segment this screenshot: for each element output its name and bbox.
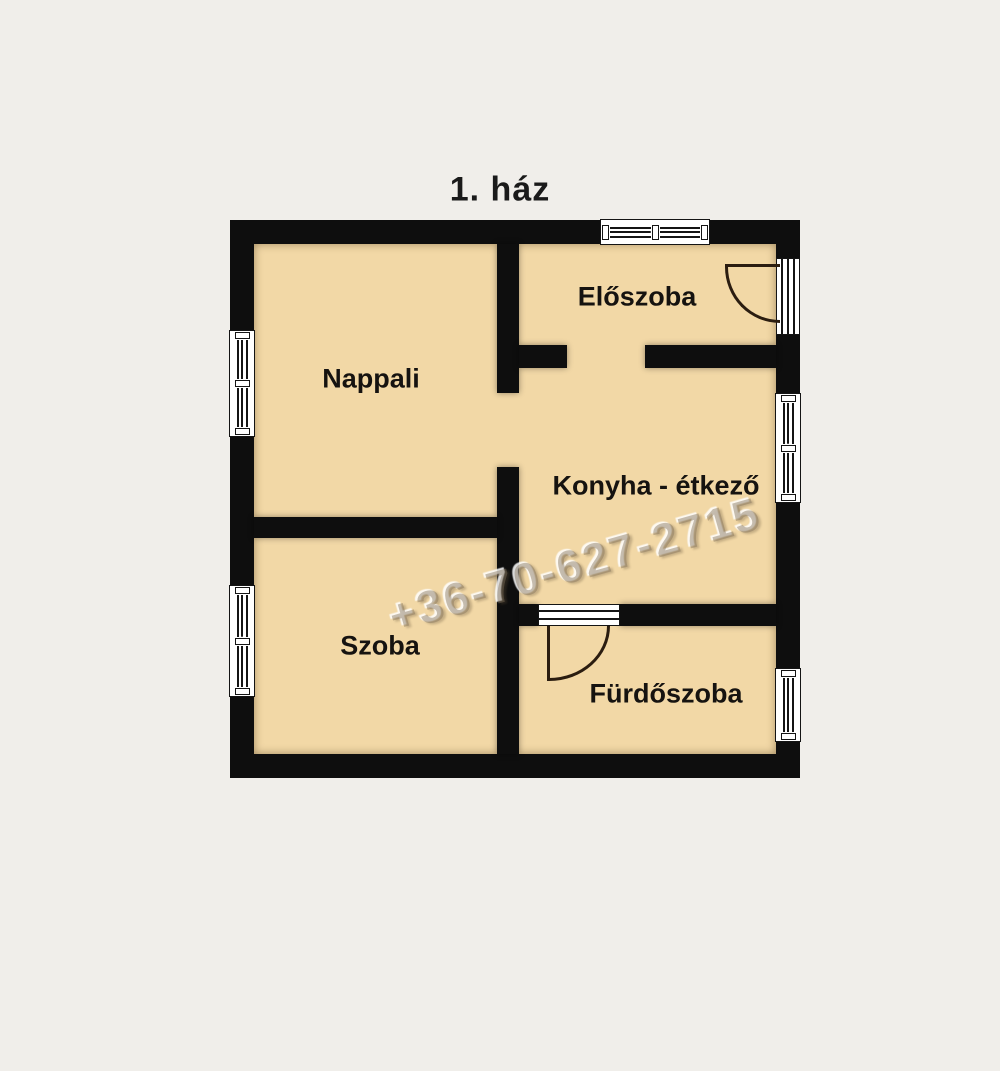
window-post	[652, 225, 659, 240]
bathroom-door-frame-icon	[538, 604, 620, 626]
window-glass	[237, 388, 248, 427]
window-glass	[610, 227, 651, 238]
room-label-nappali: Nappali	[322, 364, 420, 395]
window-post	[235, 638, 250, 645]
interior-wall-nappali-szoba	[254, 517, 497, 538]
exterior-wall-bottom	[230, 754, 800, 778]
window-icon-nappali-left	[229, 330, 255, 437]
window-post	[781, 670, 796, 677]
window-post	[235, 380, 250, 387]
window-post	[781, 494, 796, 501]
exterior-wall-top	[230, 220, 800, 244]
window-icon-eloszoba-top	[600, 219, 710, 245]
door-frame-line	[793, 259, 795, 334]
interior-wall-konyha-furdoszoba-right	[620, 604, 776, 626]
door-frame-line	[781, 259, 783, 334]
room-label-szoba: Szoba	[340, 631, 420, 662]
window-post	[781, 733, 796, 740]
floorplan: Nappali Előszoba Konyha - étkező Szoba F…	[230, 220, 800, 778]
window-post	[701, 225, 708, 240]
room-label-konyha-etkezo: Konyha - étkező	[552, 471, 759, 502]
window-icon-konyha-right	[775, 393, 801, 503]
window-glass	[237, 595, 248, 637]
room-label-eloszoba: Előszoba	[578, 282, 697, 313]
window-icon-furdoszoba-right	[775, 668, 801, 742]
window-post	[781, 445, 796, 452]
door-frame-line	[787, 259, 789, 334]
room-label-furdoszoba: Fürdőszoba	[590, 679, 743, 710]
window-glass	[237, 646, 248, 688]
interior-wall-eloszoba-konyha-right	[645, 345, 776, 368]
window-post	[602, 225, 609, 240]
door-frame-line	[539, 610, 619, 612]
door-frame-line	[539, 618, 619, 620]
interior-wall-eloszoba-konyha-left	[519, 345, 567, 368]
window-glass	[783, 403, 794, 444]
window-icon-szoba-left	[229, 585, 255, 697]
window-glass	[237, 340, 248, 379]
interior-wall-vertical-lower	[497, 467, 519, 754]
window-post	[235, 428, 250, 435]
window-post	[781, 395, 796, 402]
floorplan-canvas: 1. ház	[0, 0, 1000, 1071]
interior-wall-konyha-furdoszoba-left	[519, 604, 538, 626]
window-post	[235, 332, 250, 339]
window-glass	[660, 227, 701, 238]
window-glass	[783, 453, 794, 494]
window-glass	[783, 678, 794, 732]
window-post	[235, 688, 250, 695]
interior-wall-vertical-upper	[497, 244, 519, 393]
window-post	[235, 587, 250, 594]
page-title: 1. ház	[450, 171, 550, 210]
